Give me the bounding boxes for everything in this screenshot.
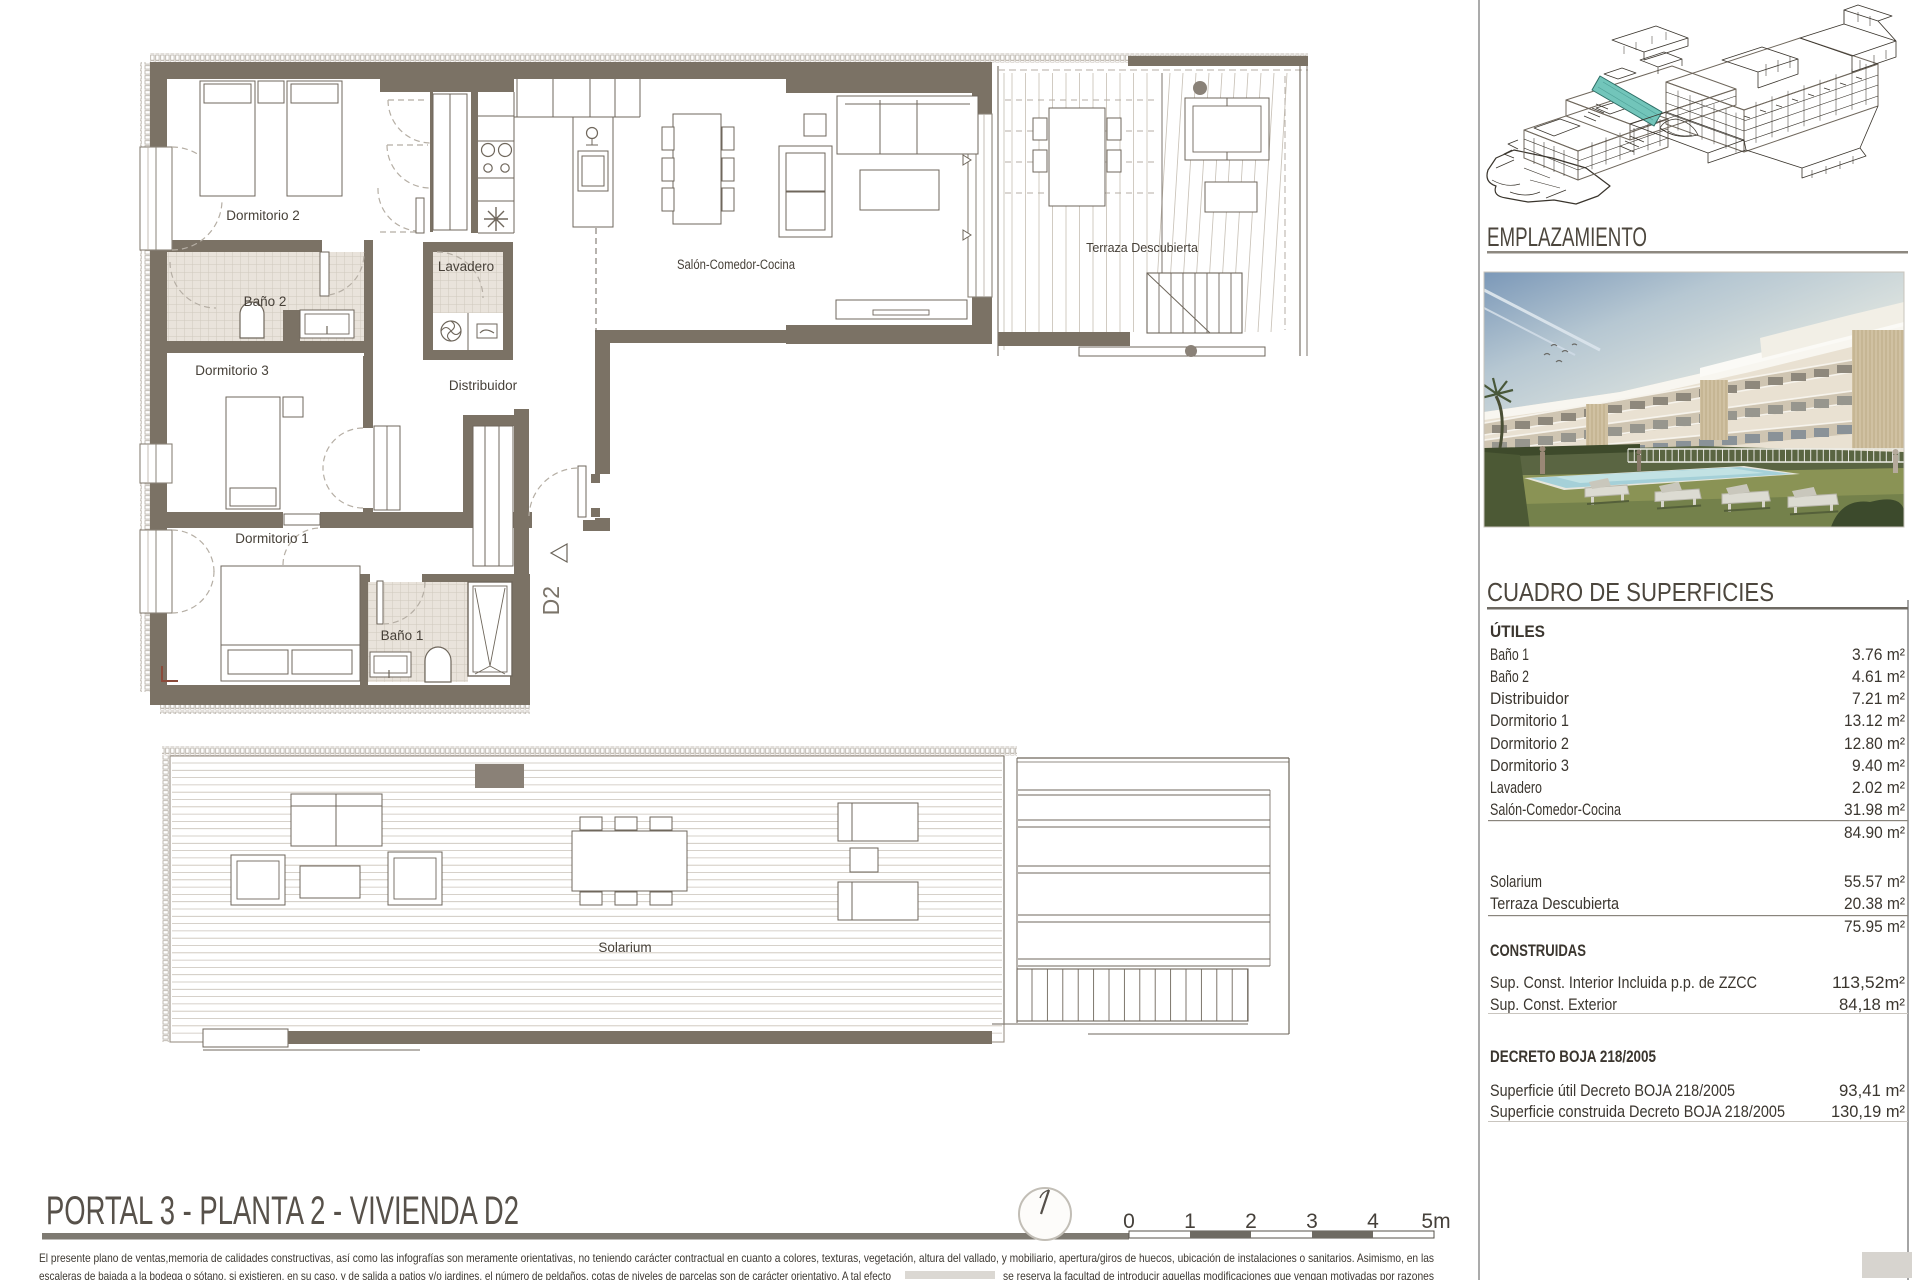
svg-text:2: 2: [1245, 1210, 1257, 1233]
svg-text:CUADRO DE SUPERFICIES: CUADRO DE SUPERFICIES: [1487, 577, 1774, 607]
svg-text:Baño 1: Baño 1: [1490, 646, 1529, 664]
svg-text:Sup. Const. Exterior: Sup. Const. Exterior: [1490, 996, 1617, 1014]
svg-text:Distribuidor: Distribuidor: [449, 378, 518, 393]
svg-text:4.61 m²: 4.61 m²: [1852, 668, 1905, 686]
svg-text:Superficie útil Decreto BOJA 2: Superficie útil Decreto BOJA 218/2005: [1490, 1082, 1735, 1100]
svg-text:0: 0: [1123, 1210, 1135, 1233]
svg-text:20.38 m²: 20.38 m²: [1844, 895, 1905, 913]
svg-text:9.40 m²: 9.40 m²: [1852, 757, 1905, 775]
svg-text:Dormitorio 1: Dormitorio 1: [235, 531, 309, 546]
svg-text:PORTAL 3 - PLANTA 2 - VIVIENDA: PORTAL 3 - PLANTA 2 - VIVIENDA D2: [46, 1189, 519, 1233]
svg-text:Sup. Const. Interior Incluida: Sup. Const. Interior Incluida p.p. de ZZ…: [1490, 974, 1757, 992]
svg-text:55.57 m²: 55.57 m²: [1844, 873, 1905, 891]
svg-text:Distribuidor: Distribuidor: [1490, 690, 1569, 708]
svg-text:Lavadero: Lavadero: [1490, 779, 1542, 797]
svg-text:Dormitorio 2: Dormitorio 2: [226, 208, 300, 223]
svg-text:12.80 m²: 12.80 m²: [1844, 735, 1905, 753]
svg-text:EMPLAZAMIENTO: EMPLAZAMIENTO: [1487, 222, 1647, 252]
svg-text:113,52m²: 113,52m²: [1832, 974, 1906, 992]
svg-text:7.21 m²: 7.21 m²: [1852, 690, 1905, 708]
svg-text:93,41 m²: 93,41 m²: [1839, 1082, 1906, 1100]
svg-text:Dormitorio 3: Dormitorio 3: [195, 363, 269, 378]
svg-text:130,19 m²: 130,19 m²: [1831, 1103, 1905, 1121]
svg-text:El presente plano de ventas,me: El presente plano de ventas,memoria de c…: [39, 1252, 1434, 1265]
svg-text:84.90 m²: 84.90 m²: [1844, 824, 1905, 842]
svg-text:3.76 m²: 3.76 m²: [1852, 646, 1905, 664]
svg-text:84,18 m²: 84,18 m²: [1839, 996, 1906, 1014]
svg-text:4: 4: [1367, 1210, 1379, 1233]
svg-text:Superficie construida Decreto: Superficie construida Decreto BOJA 218/2…: [1490, 1103, 1785, 1121]
svg-text:Dormitorio 1: Dormitorio 1: [1490, 712, 1569, 730]
svg-text:Solarium: Solarium: [1490, 873, 1542, 891]
svg-text:Dormitorio 2: Dormitorio 2: [1490, 735, 1569, 753]
svg-text:31.98 m²: 31.98 m²: [1844, 801, 1905, 819]
svg-text:Salón-Comedor-Cocina: Salón-Comedor-Cocina: [1490, 801, 1622, 819]
svg-text:Dormitorio 3: Dormitorio 3: [1490, 757, 1569, 775]
svg-text:Baño 2: Baño 2: [1490, 668, 1529, 686]
svg-text:1: 1: [1184, 1210, 1196, 1233]
svg-text:3: 3: [1306, 1210, 1318, 1233]
svg-text:CONSTRUIDAS: CONSTRUIDAS: [1490, 942, 1586, 960]
svg-text:ÚTILES: ÚTILES: [1490, 622, 1545, 641]
svg-text:13.12 m²: 13.12 m²: [1844, 712, 1905, 730]
svg-text:5m: 5m: [1421, 1210, 1450, 1233]
svg-text:Salón-Comedor-Cocina: Salón-Comedor-Cocina: [677, 257, 795, 272]
svg-text:Lavadero: Lavadero: [438, 259, 494, 274]
svg-text:2.02 m²: 2.02 m²: [1852, 779, 1905, 797]
svg-text:Baño 2: Baño 2: [244, 294, 287, 309]
svg-text:Baño 1: Baño 1: [381, 628, 424, 643]
svg-text:Solarium: Solarium: [598, 940, 651, 955]
svg-text:D2: D2: [538, 586, 564, 615]
svg-text:DECRETO BOJA 218/2005: DECRETO BOJA 218/2005: [1490, 1048, 1656, 1066]
svg-text:75.95 m²: 75.95 m²: [1844, 918, 1905, 936]
svg-text:Terraza Descubierta: Terraza Descubierta: [1490, 895, 1620, 913]
svg-text:Terraza Descubierta: Terraza Descubierta: [1086, 241, 1198, 255]
